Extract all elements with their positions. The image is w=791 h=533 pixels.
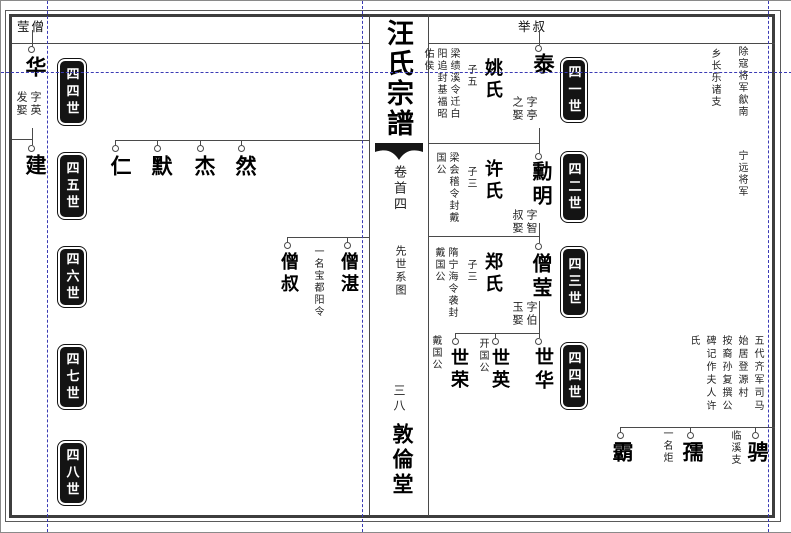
fold-continuation-line: [12, 139, 32, 140]
connector-line: [32, 128, 33, 145]
generation-badge: 四四世: [57, 58, 87, 126]
fishtail-icon: [375, 143, 423, 161]
person-name-shiying: 世英: [487, 348, 513, 392]
connector-circle: [154, 145, 161, 152]
person-name-shirong: 世荣: [446, 348, 472, 392]
person-name-ba: 霸: [607, 441, 637, 462]
person-name-shihua: 世华: [529, 347, 556, 393]
connector-circle: [452, 338, 459, 345]
branch-note-cheng: 临溪支: [727, 430, 742, 474]
margin-note-a: 除寇将军歙南: [734, 46, 749, 134]
generation-badge: 四四世: [560, 342, 588, 410]
sons-count-note: 子五: [463, 64, 478, 92]
spine-section: 先世系图: [392, 245, 408, 299]
person-name-ran: 然: [230, 155, 260, 176]
person-name-sengzhan: 僧湛: [336, 252, 362, 296]
person-note-ru: 一名炬: [659, 428, 674, 474]
connector-line: [32, 30, 33, 47]
sibling-line: [287, 237, 369, 238]
generation-badge: 四八世: [57, 440, 87, 506]
person-name-sengshu: 僧叔: [276, 252, 302, 296]
spine-volume: 卷首四: [390, 165, 409, 217]
connector-circle: [535, 243, 542, 250]
person-name-hua: 华: [20, 56, 50, 77]
fold-guide-line: [1, 72, 791, 73]
person-note-sengzhan: 一名宝都阳令: [310, 246, 325, 318]
spine-left-rule: [369, 14, 370, 516]
person-name-tai: 泰: [528, 53, 558, 74]
person-note-xunming: 字智 叔娶: [510, 209, 538, 249]
person-name-xunming: 勳明: [526, 161, 555, 209]
generation-badge: 四六世: [57, 246, 87, 308]
sons-count-note: 子三: [463, 166, 478, 194]
fold-continuation-line: [429, 143, 539, 144]
connector-circle: [535, 338, 542, 345]
connector-line: [539, 223, 540, 243]
generation-badge: 四一世: [560, 57, 588, 123]
fold-guide-line: [47, 1, 48, 532]
spine-title: 汪氏宗譜: [384, 19, 411, 147]
spine-page-number: 三八: [391, 384, 408, 414]
sibling-line: [455, 333, 540, 334]
connector-circle: [535, 153, 542, 160]
person-name-sengying: 僧莹: [526, 253, 555, 301]
connector-circle: [284, 242, 291, 249]
epitaph-note: 五代齐军司马 始居登源村 按裔孙复撰公 碑记作夫人许 氏: [685, 335, 765, 429]
margin-note-c: 乡长乐诸支: [707, 48, 722, 126]
left-header-rule: [12, 43, 369, 44]
fold-guide-line: [768, 1, 769, 532]
generation-badge: 四三世: [560, 246, 588, 318]
title-note-shiying: 开国公: [475, 338, 490, 386]
right-page-header-label: 举叔: [518, 16, 547, 35]
connector-circle: [197, 145, 204, 152]
person-name-jian: 建: [20, 154, 50, 175]
person-name-jie: 杰: [189, 155, 219, 176]
spouse-name-yaoshi: 姚氏: [480, 58, 506, 102]
title-note-sengying: 隋宁海令袭封 戴国公: [432, 247, 458, 337]
connector-line: [539, 301, 540, 334]
connector-circle: [344, 242, 351, 249]
title-note-shirong: 戴国公: [428, 335, 443, 383]
person-name-ru: 孺: [677, 441, 707, 462]
sons-count-note: 子三: [463, 259, 478, 287]
connector-circle: [535, 45, 542, 52]
generation-badge: 四七世: [57, 344, 87, 410]
connector-circle: [617, 432, 624, 439]
connector-line: [539, 30, 540, 45]
connector-circle: [687, 432, 694, 439]
spine-hall-name: 敦倫堂: [387, 423, 417, 499]
connector-circle: [492, 338, 499, 345]
sibling-line: [115, 140, 369, 141]
spouse-name-zhengshi: 郑氏: [480, 252, 506, 296]
spouse-name-xushi: 许氏: [480, 159, 506, 203]
person-note-hua: 字英 发娶: [14, 91, 42, 131]
person-name-mo: 默: [146, 155, 176, 176]
title-note-tai: 梁绩溪令迁白 阳追封基福昭 佑侯: [421, 48, 460, 138]
person-name-ren: 仁: [105, 155, 135, 176]
genealogy-page: 莹僧 华 字英 发娶 建 仁 默 杰 然 僧叔 僧湛 一名宝都阳令 四四世 四五…: [0, 0, 791, 533]
connector-circle: [28, 46, 35, 53]
fold-continuation-line: [429, 236, 539, 237]
generation-badge: 四五世: [57, 152, 87, 220]
generation-badge: 四二世: [560, 151, 588, 223]
margin-note-b: 宁远将军: [734, 150, 749, 210]
sibling-line: [620, 427, 775, 428]
connector-line: [539, 128, 540, 153]
title-note-xunming: 梁会稽令封戴 国公: [433, 152, 459, 242]
connector-circle: [752, 432, 759, 439]
person-note-sengying: 字伯 玉娶: [510, 301, 538, 341]
right-header-rule: [429, 43, 775, 44]
connector-circle: [238, 145, 245, 152]
person-note-tai: 字亭 之娶: [510, 96, 538, 136]
connector-circle: [28, 145, 35, 152]
connector-circle: [112, 145, 119, 152]
fold-guide-line: [362, 1, 363, 532]
